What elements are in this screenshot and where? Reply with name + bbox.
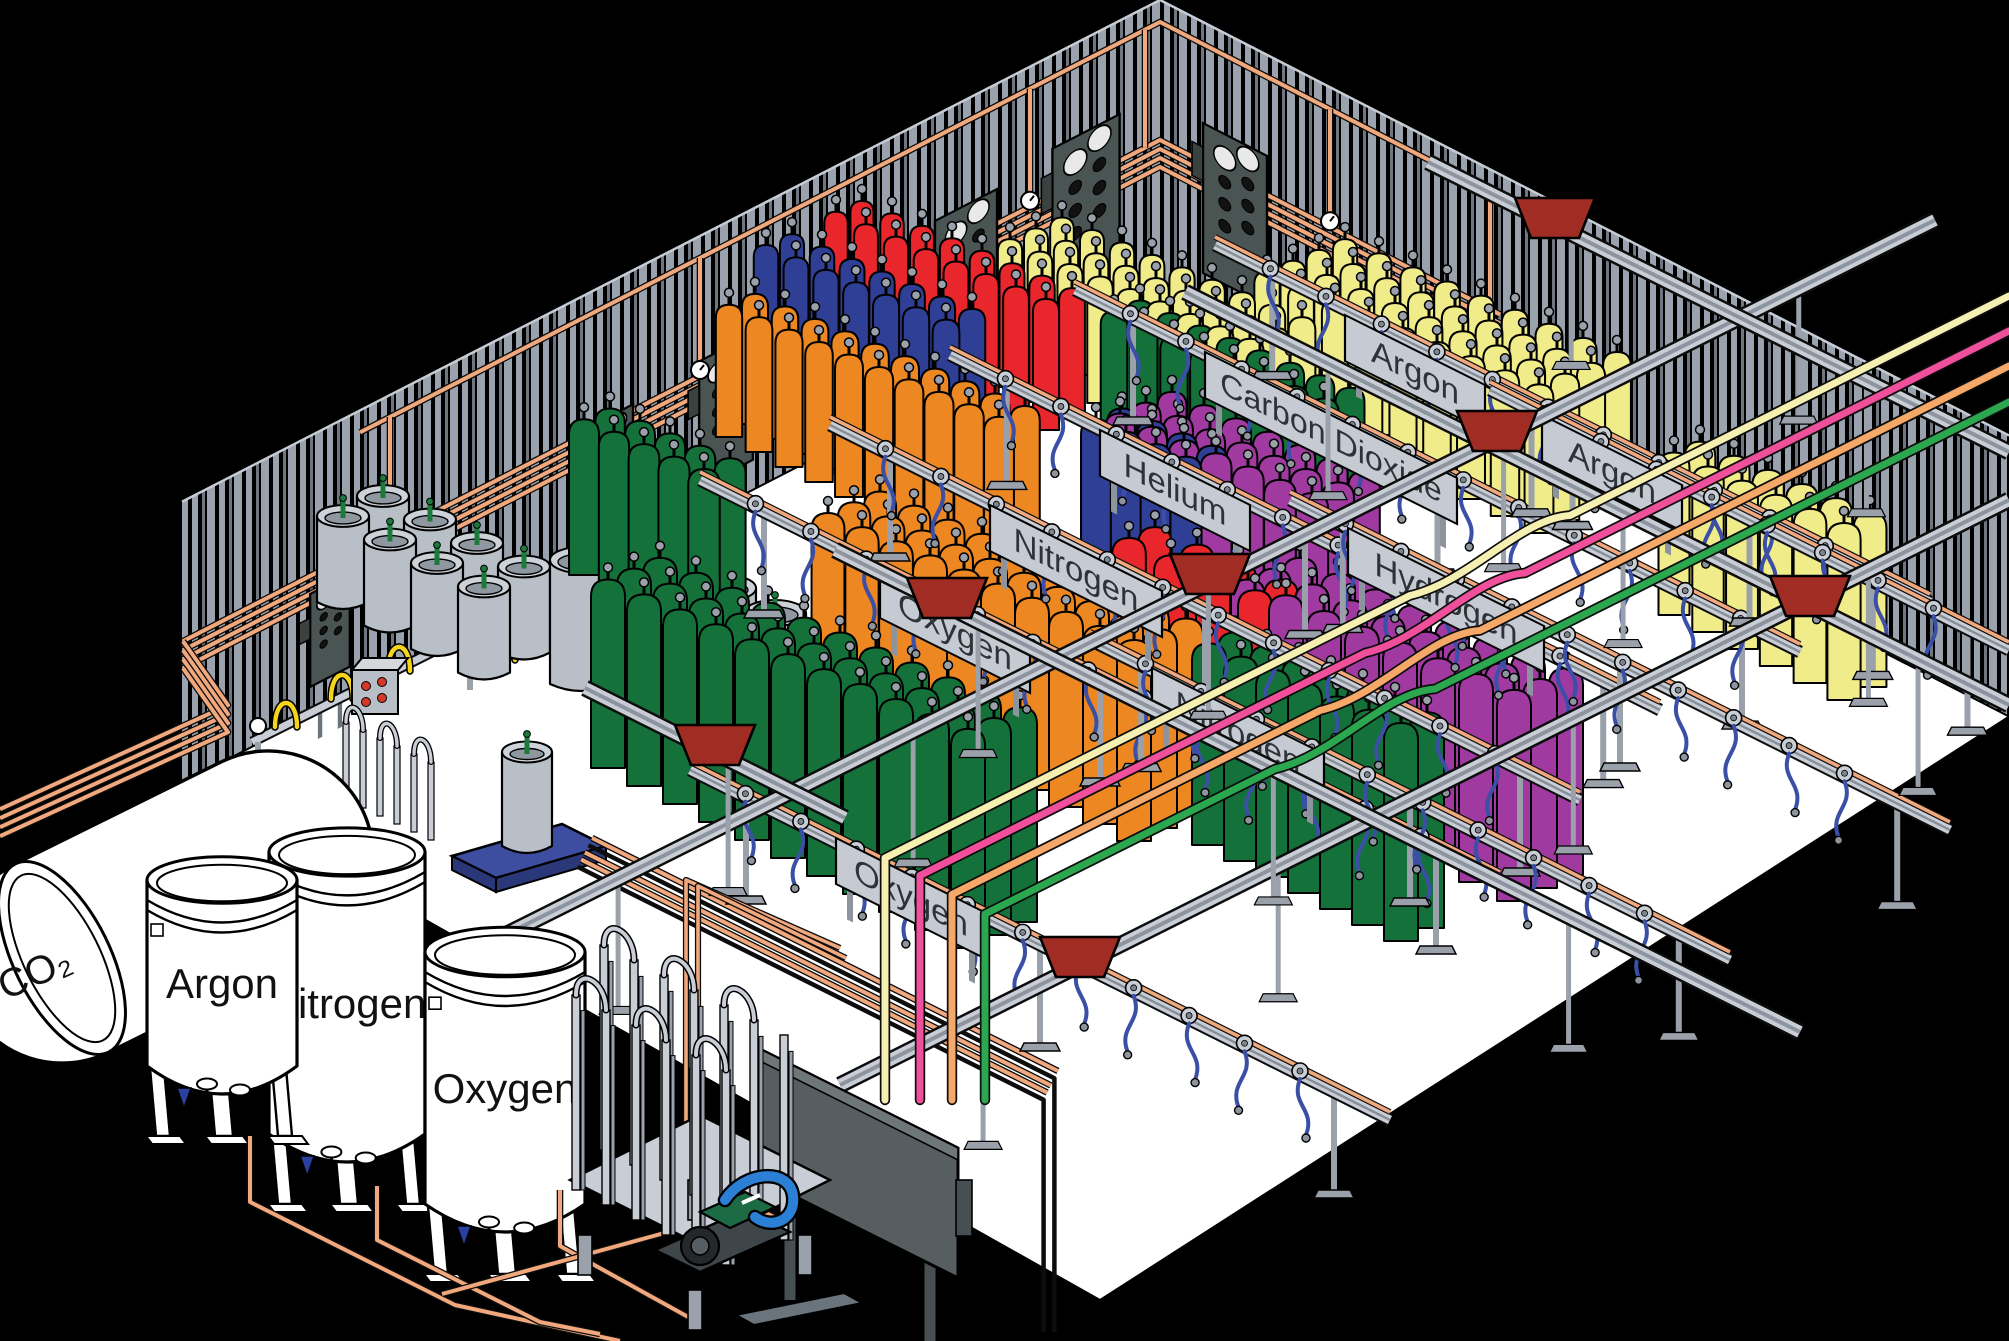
cylinder: [627, 578, 661, 786]
isometric-scene: OxygenOxygenNitrogenHeliumCarbon Dioxide…: [0, 0, 2009, 1341]
cylinder: [895, 363, 924, 527]
cylinder: [775, 313, 802, 467]
cylinder: [591, 563, 625, 768]
gas-filling-plant-illustration: OxygenOxygenNitrogenHeliumCarbon Dioxide…: [0, 0, 2009, 1341]
cylinder: [835, 338, 863, 497]
cylinder: [599, 415, 629, 590]
cylinder: [716, 288, 742, 437]
tank-label: Argon: [166, 960, 278, 1007]
cylinder: [746, 301, 773, 452]
tank-label: Oxygen: [433, 1065, 578, 1112]
cylinder: [569, 403, 599, 575]
cylinder: [805, 326, 833, 482]
cylinder: [1497, 673, 1531, 901]
